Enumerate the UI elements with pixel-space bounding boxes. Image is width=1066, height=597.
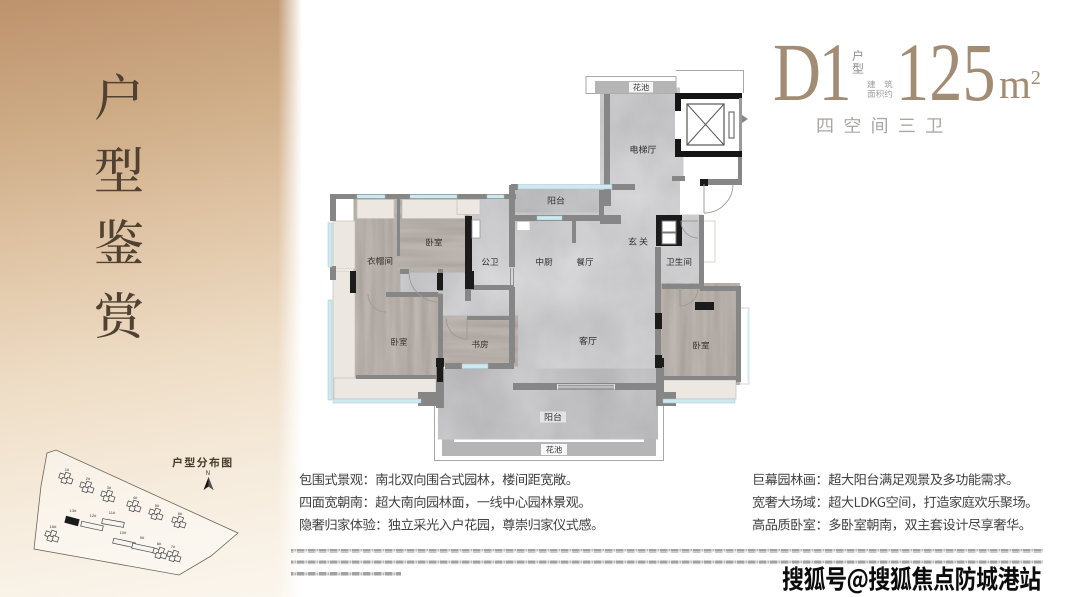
svg-text:7#: 7# (171, 544, 176, 549)
svg-text:1#: 1# (65, 467, 70, 472)
svg-text:10#: 10# (120, 530, 127, 535)
svg-text:13#: 13# (70, 508, 77, 513)
svg-text:9#: 9# (140, 535, 145, 540)
svg-text:8#: 8# (157, 541, 162, 546)
svg-text:12#: 12# (90, 513, 97, 518)
svg-text:11#: 11# (109, 510, 116, 515)
svg-text:16#: 16# (50, 524, 57, 529)
svg-text:3#: 3# (107, 485, 112, 490)
svg-text:5#: 5# (155, 503, 160, 508)
svg-text:6#: 6# (178, 511, 183, 516)
svg-text:2#: 2# (86, 476, 91, 481)
svg-text:4#: 4# (133, 495, 138, 500)
